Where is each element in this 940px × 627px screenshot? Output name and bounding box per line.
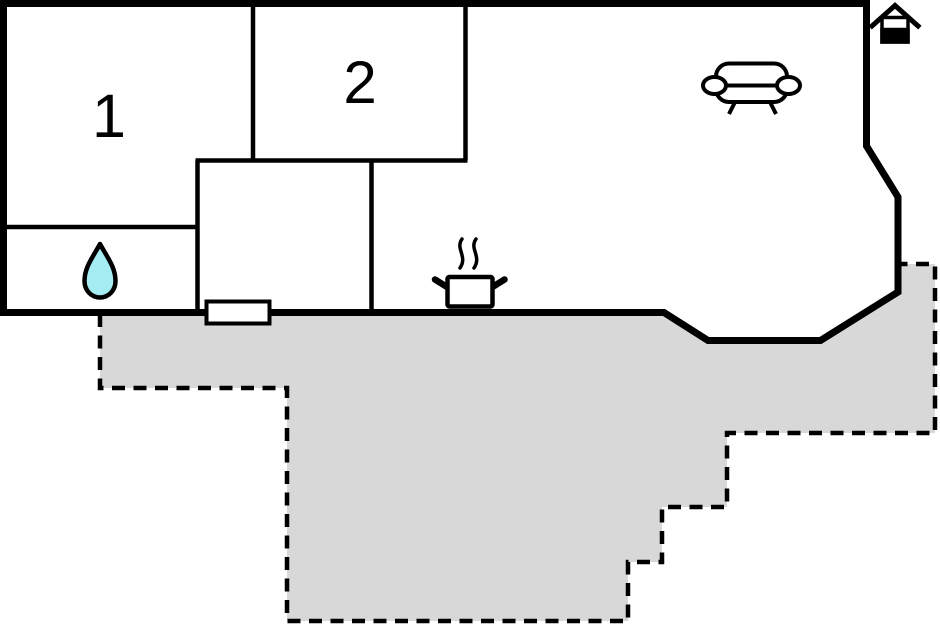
sofa-armrest-right	[777, 77, 800, 94]
floor-plan-page: 1 2	[0, 0, 940, 627]
room-1-label: 1	[92, 82, 126, 150]
door-opening	[207, 302, 270, 324]
entrance-house-icon	[872, 6, 918, 43]
pot-body	[448, 277, 493, 307]
sofa-armrest-left	[703, 77, 726, 94]
room-2-label: 2	[343, 49, 376, 116]
floor-plan-svg: 1 2	[0, 0, 940, 627]
